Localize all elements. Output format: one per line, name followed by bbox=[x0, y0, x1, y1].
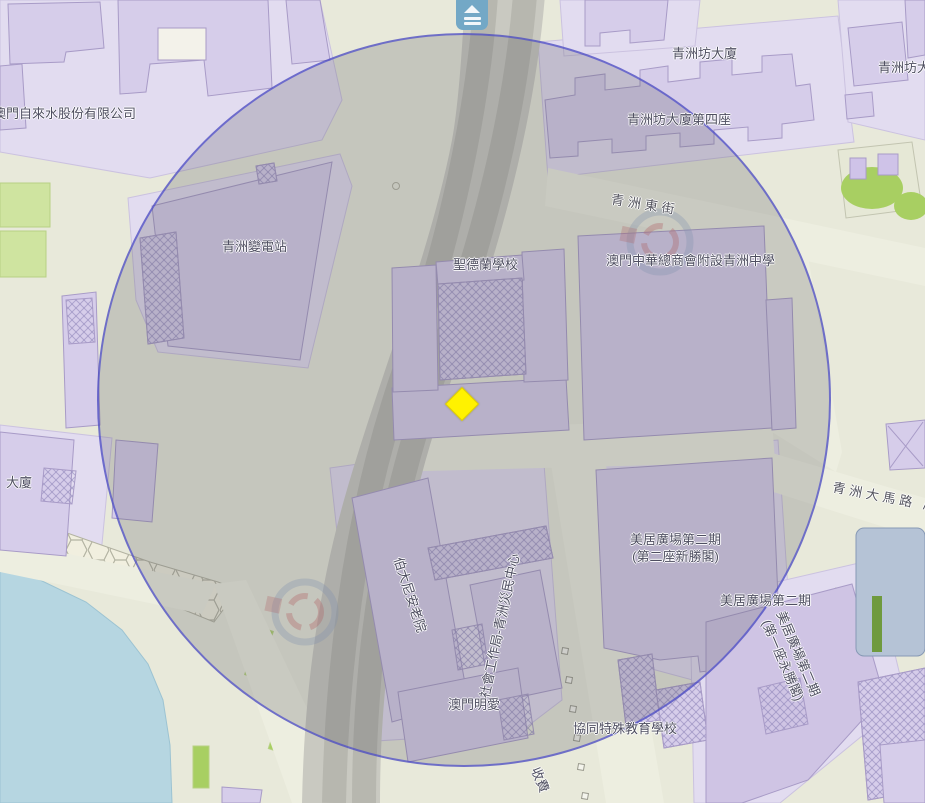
map-viewport[interactable]: { "map": { "control": { "layers_button":… bbox=[0, 0, 925, 803]
label-st-theresa: 聖德蘭學校 bbox=[453, 254, 518, 273]
park bbox=[838, 142, 925, 220]
label-iec-block4: 青洲坊大廈第四座 bbox=[627, 109, 731, 128]
layers-button[interactable] bbox=[456, 0, 488, 30]
label-substation: 青洲變電站 bbox=[222, 236, 287, 255]
label-water-company: 澳門自來水股份有限公司 bbox=[0, 103, 136, 122]
label-iec-corner: 青洲坊大廈 bbox=[878, 57, 925, 76]
layers-icon bbox=[464, 5, 480, 13]
label-caritas: 澳門明愛 bbox=[448, 694, 500, 713]
label-building: 大廈 bbox=[6, 472, 32, 491]
label-iec-block: 青洲坊大廈 bbox=[672, 43, 737, 62]
label-mei-keng-b: 美居廣場第二期 bbox=[720, 590, 811, 609]
label-mei-keng-a: 美居廣場第二期 (第二座新勝閣) bbox=[630, 531, 721, 565]
label-chung-wah-middle: 澳門中華總商會附設青洲中學 bbox=[606, 250, 775, 269]
label-concordia: 協同特殊教育學校 bbox=[573, 718, 677, 737]
